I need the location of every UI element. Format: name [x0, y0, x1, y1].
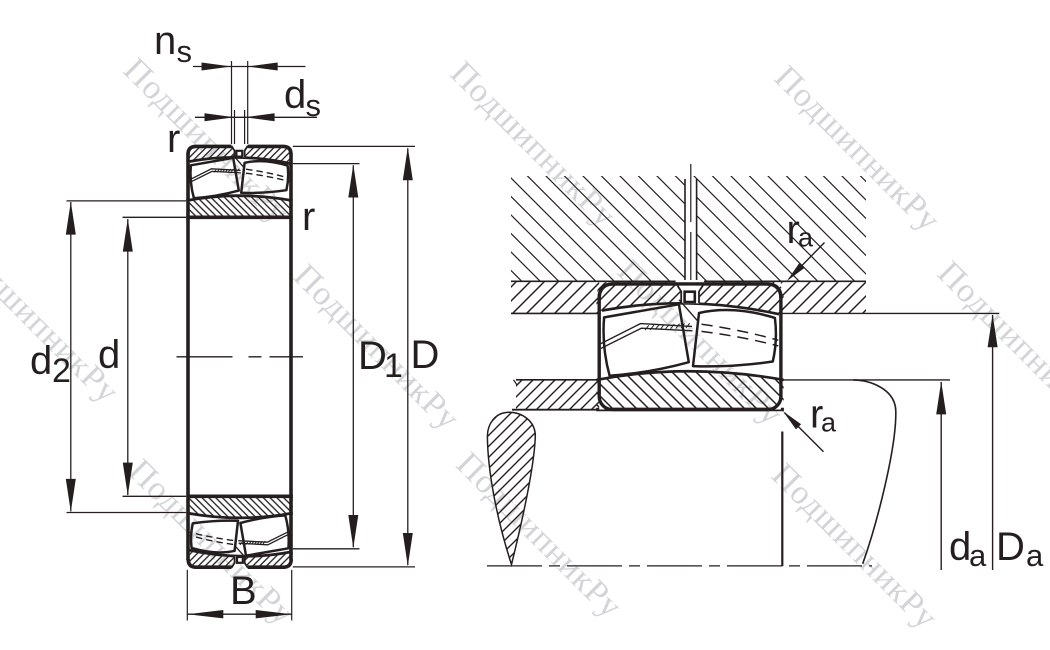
svg-text:n: n — [154, 19, 176, 63]
svg-text:r: r — [302, 195, 315, 239]
svg-text:a: a — [798, 223, 814, 253]
svg-text:s: s — [306, 88, 322, 123]
svg-text:a: a — [1026, 538, 1044, 573]
svg-text:s: s — [177, 34, 193, 69]
svg-text:a: a — [821, 408, 837, 438]
svg-text:d: d — [949, 525, 971, 569]
svg-text:d: d — [284, 73, 306, 117]
svg-text:a: a — [969, 538, 987, 573]
svg-text:D: D — [996, 525, 1025, 569]
